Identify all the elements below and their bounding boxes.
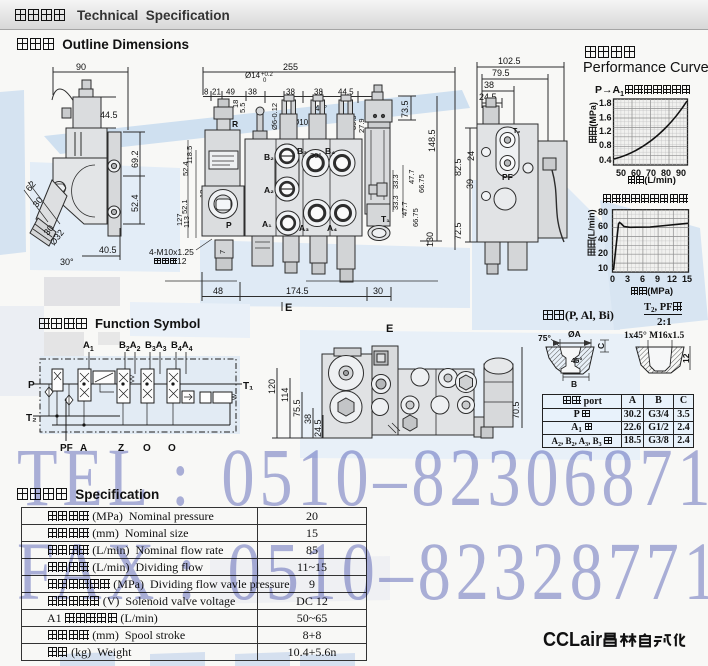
svg-text:T₁: T₁	[381, 214, 390, 224]
svg-text:52.4: 52.4	[130, 194, 140, 212]
svg-text:R: R	[232, 119, 238, 129]
svg-text:12: 12	[667, 274, 677, 284]
svg-text:T₁: T₁	[243, 381, 253, 392]
svg-text:A₄: A₄	[327, 223, 337, 233]
svg-text:52.4: 52.4	[181, 161, 190, 176]
svg-text:A₂: A₂	[264, 185, 274, 195]
svg-text:80: 80	[598, 207, 608, 217]
svg-text:A₁: A₁	[262, 219, 272, 229]
svg-text:15: 15	[682, 274, 692, 284]
svg-text:48: 48	[213, 286, 223, 296]
svg-text:40.5: 40.5	[99, 245, 117, 255]
svg-text:20: 20	[598, 248, 608, 258]
svg-text:P: P	[226, 220, 232, 230]
svg-text:113: 113	[182, 216, 191, 228]
svg-text:90: 90	[676, 168, 686, 178]
svg-text:66.75: 66.75	[417, 174, 426, 193]
svg-text:148.5: 148.5	[427, 129, 437, 152]
svg-text:39: 39	[465, 179, 475, 189]
svg-text:9: 9	[655, 274, 660, 284]
svg-text:33.3: 33.3	[391, 195, 400, 210]
svg-text:82.5: 82.5	[453, 158, 463, 176]
svg-text:70.5: 70.5	[511, 401, 521, 419]
svg-text:30: 30	[373, 286, 383, 296]
svg-text:5.5: 5.5	[238, 103, 247, 113]
svg-text:255: 255	[283, 62, 298, 72]
svg-text:66.75: 66.75	[411, 208, 420, 227]
svg-text:0.8: 0.8	[599, 140, 612, 150]
svg-text:47.7: 47.7	[407, 169, 416, 184]
svg-text:47.7: 47.7	[400, 201, 409, 216]
svg-text:PF: PF	[502, 172, 513, 182]
svg-text:114: 114	[280, 388, 290, 402]
svg-text:Ø14: Ø14	[245, 71, 261, 80]
svg-text:33.3: 33.3	[391, 174, 400, 189]
svg-text:38: 38	[484, 80, 494, 90]
svg-text:6: 6	[640, 274, 645, 284]
svg-text:A₃: A₃	[299, 223, 309, 233]
svg-text:C: C	[596, 343, 606, 349]
svg-text:45°: 45°	[571, 356, 582, 365]
svg-text:75.5: 75.5	[292, 399, 302, 417]
svg-text:79.5: 79.5	[492, 68, 510, 78]
svg-text:30°: 30°	[310, 151, 321, 160]
svg-text:38: 38	[303, 414, 313, 424]
svg-text:21: 21	[212, 88, 221, 97]
svg-text:B₂: B₂	[264, 152, 274, 162]
svg-text:1.8: 1.8	[599, 98, 612, 108]
svg-text:0: 0	[610, 274, 615, 284]
svg-text:7: 7	[218, 250, 227, 254]
svg-text:B₄: B₄	[325, 146, 335, 156]
svg-text:T₂: T₂	[26, 413, 37, 424]
svg-text:69.2: 69.2	[130, 150, 140, 168]
svg-text:P: P	[28, 380, 35, 391]
svg-text:B: B	[571, 379, 577, 389]
svg-text:49: 49	[226, 88, 235, 97]
svg-text:3: 3	[625, 274, 630, 284]
svg-text:0: 0	[263, 78, 267, 84]
svg-text:75°: 75°	[538, 333, 551, 343]
svg-text:ØA: ØA	[568, 329, 581, 339]
svg-text:T₂: T₂	[513, 128, 520, 135]
svg-text:Ø6-0.12: Ø6-0.12	[270, 103, 279, 130]
svg-text:0.4: 0.4	[599, 155, 612, 165]
svg-text:174.5: 174.5	[286, 286, 309, 296]
svg-text:62: 62	[24, 179, 38, 193]
svg-text:30°: 30°	[60, 257, 74, 267]
svg-text:130: 130	[425, 232, 435, 247]
svg-text:40: 40	[598, 234, 608, 244]
svg-text:73.5: 73.5	[400, 100, 410, 118]
svg-text:B₃: B₃	[297, 146, 307, 156]
svg-text:10: 10	[598, 263, 608, 273]
svg-text:8: 8	[204, 88, 209, 97]
svg-text:E: E	[285, 302, 292, 314]
svg-text:1.6: 1.6	[599, 113, 612, 123]
svg-text:50: 50	[616, 168, 626, 178]
svg-text:72.5: 72.5	[453, 222, 463, 240]
svg-text:118.5: 118.5	[185, 146, 194, 164]
svg-text:E: E	[386, 323, 393, 335]
svg-text:1.2: 1.2	[599, 126, 612, 136]
svg-text:38: 38	[248, 88, 257, 97]
svg-text:60: 60	[598, 221, 608, 231]
svg-text:120: 120	[267, 379, 277, 394]
svg-text:44.5: 44.5	[100, 110, 118, 120]
svg-text:12: 12	[681, 353, 691, 363]
svg-text:102.5: 102.5	[498, 56, 521, 66]
svg-text:24: 24	[466, 151, 476, 161]
svg-text:90: 90	[76, 62, 86, 72]
